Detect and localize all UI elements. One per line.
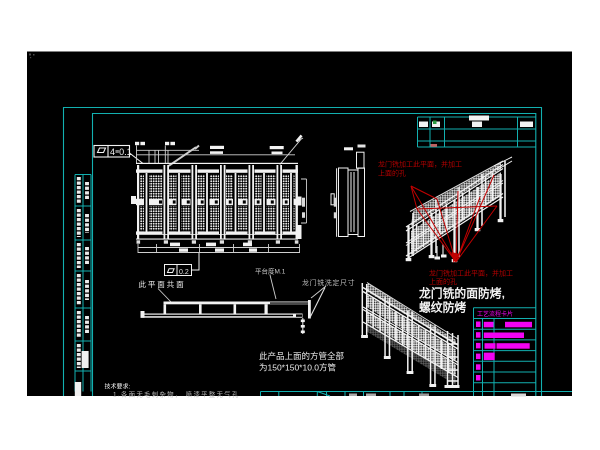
svg-text:上面的孔: 上面的孔 <box>378 169 406 178</box>
svg-text:工艺流程卡片: 工艺流程卡片 <box>477 310 513 318</box>
svg-text:为150*150*10.0方管: 为150*150*10.0方管 <box>259 363 336 373</box>
svg-text:技术要求:: 技术要求: <box>105 383 131 391</box>
svg-text:龙门铣加工此平面，并加工: 龙门铣加工此平面，并加工 <box>378 160 462 169</box>
svg-text:上面的孔: 上面的孔 <box>429 277 457 286</box>
svg-text:此平面共面: 此平面共面 <box>139 279 186 289</box>
svg-text:龙门铣的面防烤,: 龙门铣的面防烤, <box>418 287 505 301</box>
svg-text:0.2: 0.2 <box>179 269 189 276</box>
svg-text:平台度M.1: 平台度M.1 <box>255 267 286 276</box>
svg-text:螺纹防烤: 螺纹防烤 <box>419 301 466 315</box>
svg-text:龙门铣加工此平面，并加工: 龙门铣加工此平面，并加工 <box>429 269 513 278</box>
svg-text:此产品上面的方管全部: 此产品上面的方管全部 <box>259 351 345 361</box>
svg-text:龙门铣洗定尺寸: 龙门铣洗定尺寸 <box>302 278 355 287</box>
svg-text:1.各面无毛刺杂物， 喷漆平整无气孔: 1.各面无毛刺杂物， 喷漆平整无气孔 <box>113 389 240 398</box>
svg-text:4≡0.1: 4≡0.1 <box>110 147 132 157</box>
